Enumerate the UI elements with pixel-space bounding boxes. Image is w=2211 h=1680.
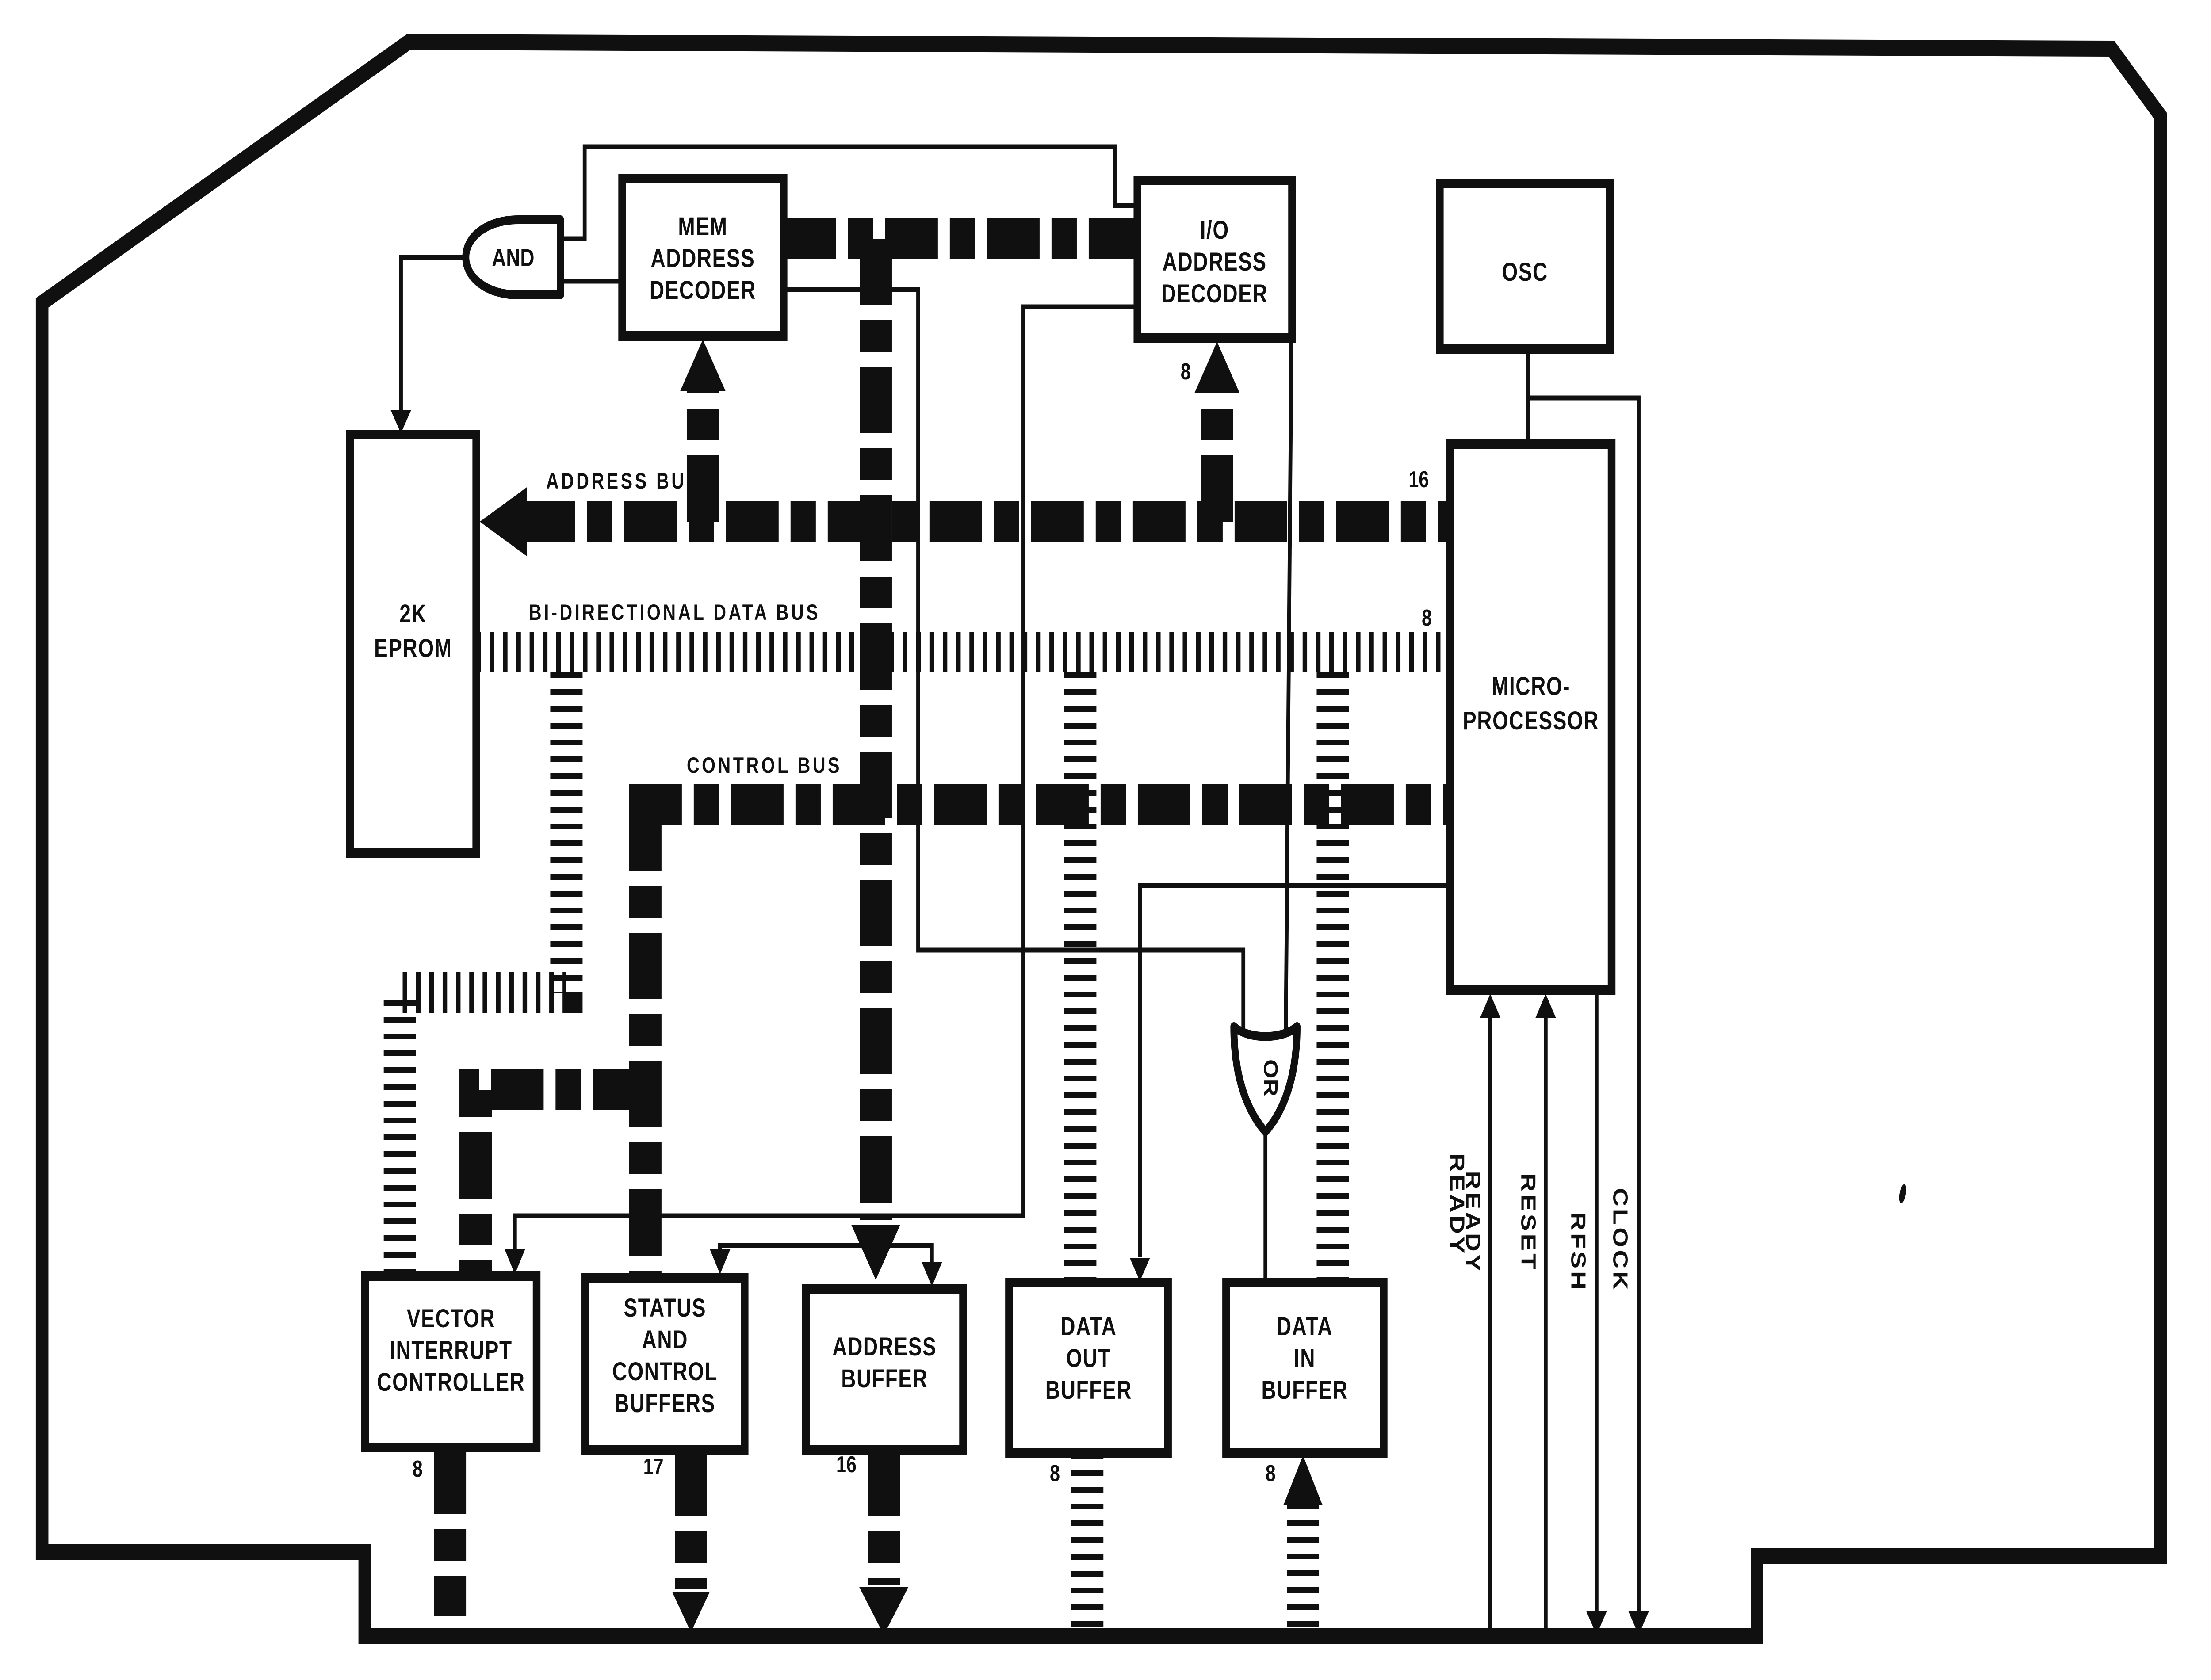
status-label-4: BUFFERS — [615, 1390, 715, 1418]
address-bottom-arrowhead — [859, 1587, 908, 1635]
data-bus-label: BI-DIRECTIONAL DATA BUS — [529, 600, 820, 625]
and-gate-label: AND — [492, 244, 534, 271]
ready-label: READY — [1461, 1171, 1484, 1274]
data-in-label-2: IN — [1294, 1344, 1316, 1373]
data-bus-width: 8 — [1422, 605, 1432, 630]
labels: AND OR MEM ADDRESS DECODER I/O ADDRESS D… — [374, 213, 1631, 1486]
eprom-label-1: 2K — [399, 600, 427, 628]
mem-decoder-label-1: MEM — [678, 213, 727, 241]
address-buffer-label-1: ADDRESS — [832, 1333, 937, 1361]
data-in-label-1: DATA — [1277, 1313, 1333, 1341]
reset-label: RESET — [1517, 1173, 1539, 1271]
status-bottom-arrowhead — [672, 1592, 710, 1632]
io-decoder-label-2: ADDRESS — [1163, 248, 1267, 276]
status-label-2: AND — [642, 1326, 688, 1354]
mem-decoder-bus-arrowhead — [680, 340, 726, 391]
microprocessor-label-1: MICRO- — [1492, 672, 1570, 701]
status-label-1: STATUS — [624, 1294, 706, 1322]
eprom-label-2: EPROM — [374, 634, 452, 663]
status-out-width: 17 — [643, 1454, 664, 1479]
rfsh-label: RFSH — [1567, 1212, 1589, 1292]
and-to-eprom-wire — [401, 257, 467, 410]
address-enable-arrowhead — [922, 1262, 942, 1287]
stray-mark — [1898, 1183, 1908, 1204]
data-out-width: 8 — [1050, 1460, 1060, 1486]
reset-arrowhead — [1535, 994, 1556, 1018]
mem-decoder-label-3: DECODER — [650, 276, 756, 305]
block-diagram-canvas: AND OR MEM ADDRESS DECODER I/O ADDRESS D… — [0, 0, 2211, 1680]
microprocessor-label-2: PROCESSOR — [1463, 707, 1599, 735]
address-out-width: 16 — [836, 1451, 857, 1477]
data-out-label-2: OUT — [1066, 1344, 1111, 1373]
vic-label-1: VECTOR — [407, 1305, 495, 1333]
io-decoder-label-1: I/O — [1200, 216, 1229, 244]
mem-decoder-label-2: ADDRESS — [650, 244, 755, 273]
clock-label: CLOCK — [1609, 1188, 1631, 1292]
vic-enable-arrowhead — [505, 1249, 525, 1274]
osc-label: OSC — [1502, 258, 1548, 286]
data-in-width: 8 — [1266, 1460, 1276, 1486]
data-out-label-3: BUFFER — [1045, 1376, 1132, 1405]
address-bus-arrowhead — [480, 487, 527, 556]
buffer-enable-wire — [720, 1245, 932, 1262]
vic-label-3: CONTROLLER — [377, 1368, 525, 1397]
vic-control-branch-bus — [476, 1090, 646, 1276]
status-enable-arrowhead — [710, 1249, 730, 1274]
data-in-label-3: BUFFER — [1262, 1376, 1348, 1405]
address-buffer-label-2: BUFFER — [841, 1365, 928, 1393]
address-buffer-bus-arrowhead — [851, 1225, 900, 1280]
data-out-label-1: DATA — [1060, 1313, 1117, 1341]
control-bus-label: CONTROL BUS — [687, 753, 842, 778]
io-address-width: 8 — [1181, 359, 1191, 384]
io-decoder-bus-arrowhead — [1194, 342, 1240, 393]
vic-label-2: INTERRUPT — [390, 1336, 512, 1365]
vector-out-width: 8 — [413, 1456, 423, 1481]
datain-bottom-arrowhead — [1283, 1455, 1323, 1505]
address-bus-width: 16 — [1408, 466, 1429, 492]
ready-arrowhead — [1480, 994, 1500, 1018]
io-decoder-label-3: DECODER — [1161, 280, 1268, 308]
address-bus-label: ADDRESS BUS — [546, 469, 701, 494]
io-to-or-wire — [1286, 340, 1292, 1034]
or-gate-label: OR — [1260, 1059, 1282, 1096]
status-label-3: CONTROL — [612, 1358, 718, 1386]
data-buses — [400, 652, 1450, 1636]
